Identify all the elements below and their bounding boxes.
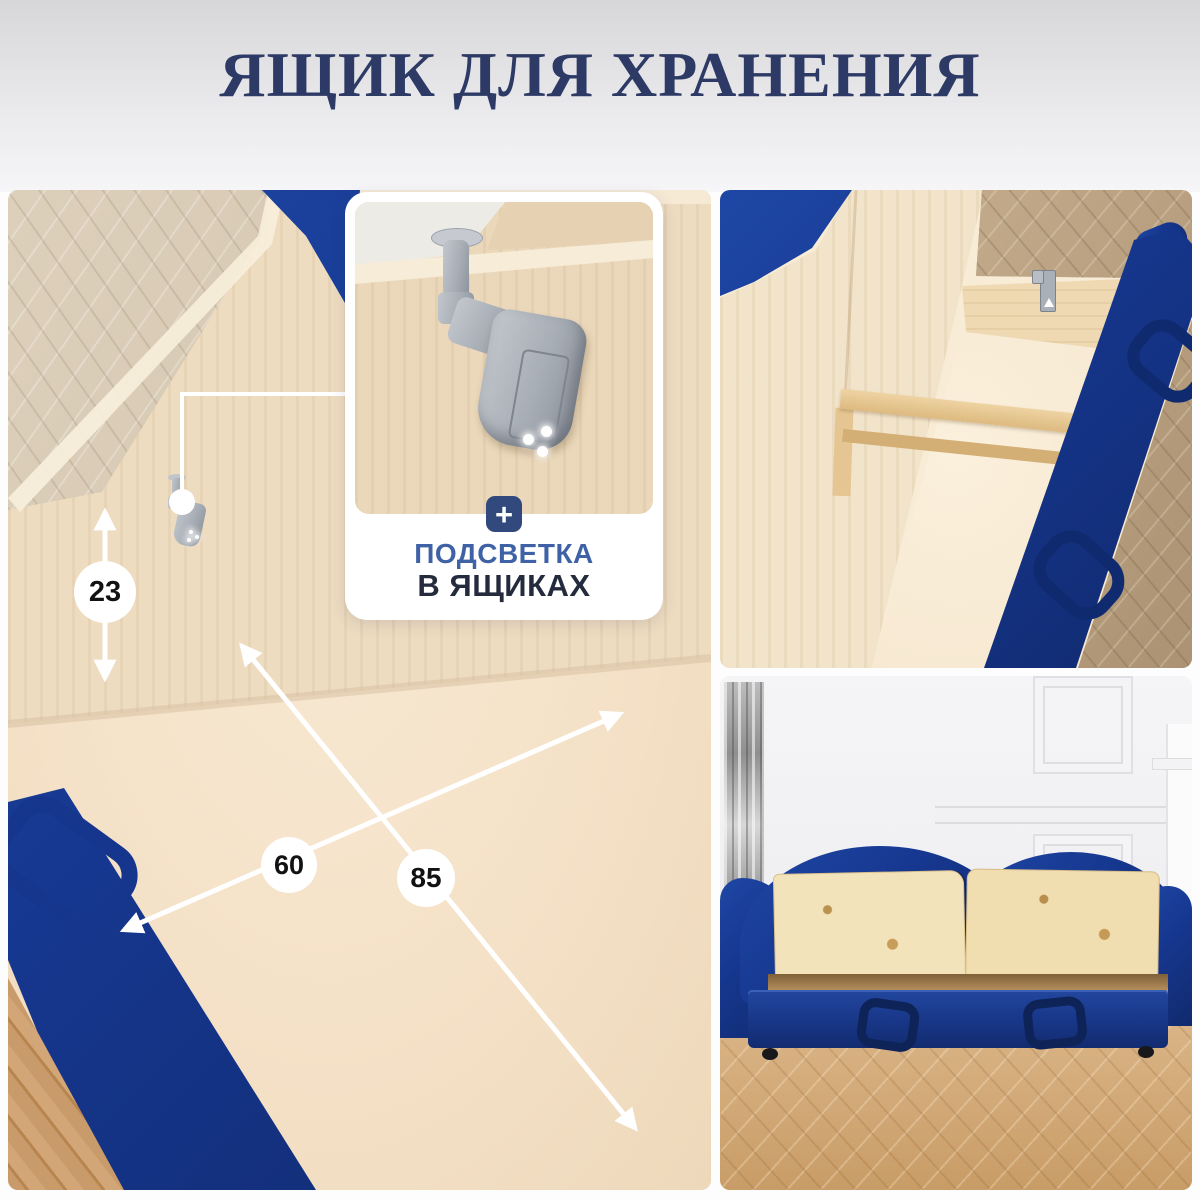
- plus-icon: +: [486, 496, 522, 532]
- measure-depth: 85: [397, 849, 455, 907]
- latch-shaft: [443, 240, 469, 298]
- measure-width-value: 60: [274, 850, 304, 881]
- plus-glyph: +: [495, 499, 513, 530]
- storage-lid-left: [773, 870, 966, 988]
- fabric-loop-handle: [855, 996, 921, 1054]
- measure-height: 23: [74, 561, 136, 623]
- measure-depth-value: 85: [410, 862, 441, 894]
- bracket-foot: [1032, 270, 1044, 284]
- led-light: [541, 426, 552, 437]
- caster-wheel: [762, 1048, 778, 1060]
- caster-wheel: [1138, 1046, 1154, 1058]
- page-title: ЯЩИК ДЛЯ ХРАНЕНИЯ: [0, 38, 1200, 112]
- door-sill: [1152, 758, 1192, 770]
- callout-label-line1: ПОДСВЕТКА: [345, 538, 663, 570]
- led-light: [523, 434, 534, 445]
- fabric-loop-handle: [1022, 995, 1089, 1051]
- measure-width: 60: [261, 837, 317, 893]
- storage-lid-right: [965, 868, 1160, 987]
- tiny-arrow: [1044, 298, 1054, 307]
- led-light: [537, 446, 548, 457]
- photo-drawer-construction: [720, 190, 1192, 668]
- photo-sofa-open-storage: [720, 676, 1192, 1190]
- measure-height-value: 23: [89, 576, 121, 609]
- callout-card: + ПОДСВЕТКА В ЯЩИКАХ: [345, 192, 663, 620]
- sofa-base-box: [748, 990, 1168, 1048]
- callout-label-line2: В ЯЩИКАХ: [345, 568, 663, 604]
- wall-panel-upper: [1033, 676, 1133, 774]
- hinge-closeup-photo: [355, 202, 653, 514]
- header: ЯЩИК ДЛЯ ХРАНЕНИЯ: [0, 0, 1200, 192]
- chair-rail: [935, 806, 1192, 824]
- beam-leg: [832, 408, 853, 497]
